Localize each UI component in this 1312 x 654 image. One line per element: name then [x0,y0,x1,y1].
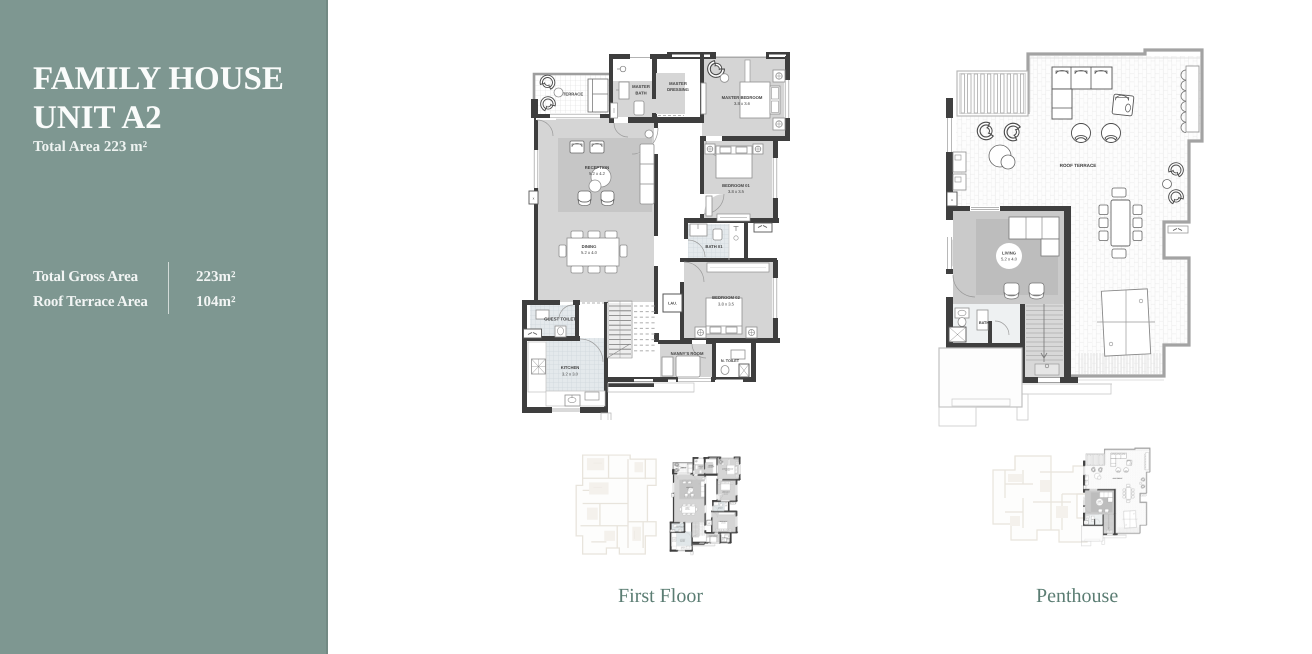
svg-text:KITCHEN: KITCHEN [561,365,580,370]
svg-text:LAU.: LAU. [668,302,677,306]
svg-text:NANNY'S ROOM: NANNY'S ROOM [671,351,704,356]
svg-text:BEDROOM 01: BEDROOM 01 [722,183,750,188]
svg-text:N. TOILET: N. TOILET [721,359,740,363]
svg-text:GUEST TOILET: GUEST TOILET [544,317,576,322]
svg-text:5.2 x 4.0: 5.2 x 4.0 [581,250,598,255]
svg-text:x: x [533,197,535,201]
svg-text:MASTER: MASTER [669,81,687,86]
svg-text:3.8 x 3.5: 3.8 x 3.5 [728,189,745,194]
svg-text:3.8 x 3.5: 3.8 x 3.5 [718,302,735,307]
svg-text:LIVING: LIVING [1002,251,1016,256]
svg-text:DINING: DINING [582,244,597,249]
svg-text:BATH 01: BATH 01 [705,244,723,249]
svg-text:3.8 x 3.6: 3.8 x 3.6 [734,101,751,106]
svg-text:DRESSING: DRESSING [667,87,689,92]
svg-text:BATH: BATH [635,91,646,96]
svg-text:BATH: BATH [979,321,990,325]
svg-text:3.2 x 3.0: 3.2 x 3.0 [562,372,579,377]
svg-text:5.2 x 4.2: 5.2 x 4.2 [589,171,606,176]
svg-text:TERRACE: TERRACE [563,92,583,97]
svg-text:RECEPTION: RECEPTION [585,165,609,170]
svg-text:MASTER BEDROOM: MASTER BEDROOM [722,95,763,100]
svg-text:x: x [951,198,953,202]
svg-text:MASTER: MASTER [632,84,650,89]
svg-text:5.2 x 4.0: 5.2 x 4.0 [1001,257,1018,262]
svg-text:ROOF TERRACE: ROOF TERRACE [1060,163,1097,168]
svg-text:BEDROOM 02: BEDROOM 02 [712,295,740,300]
